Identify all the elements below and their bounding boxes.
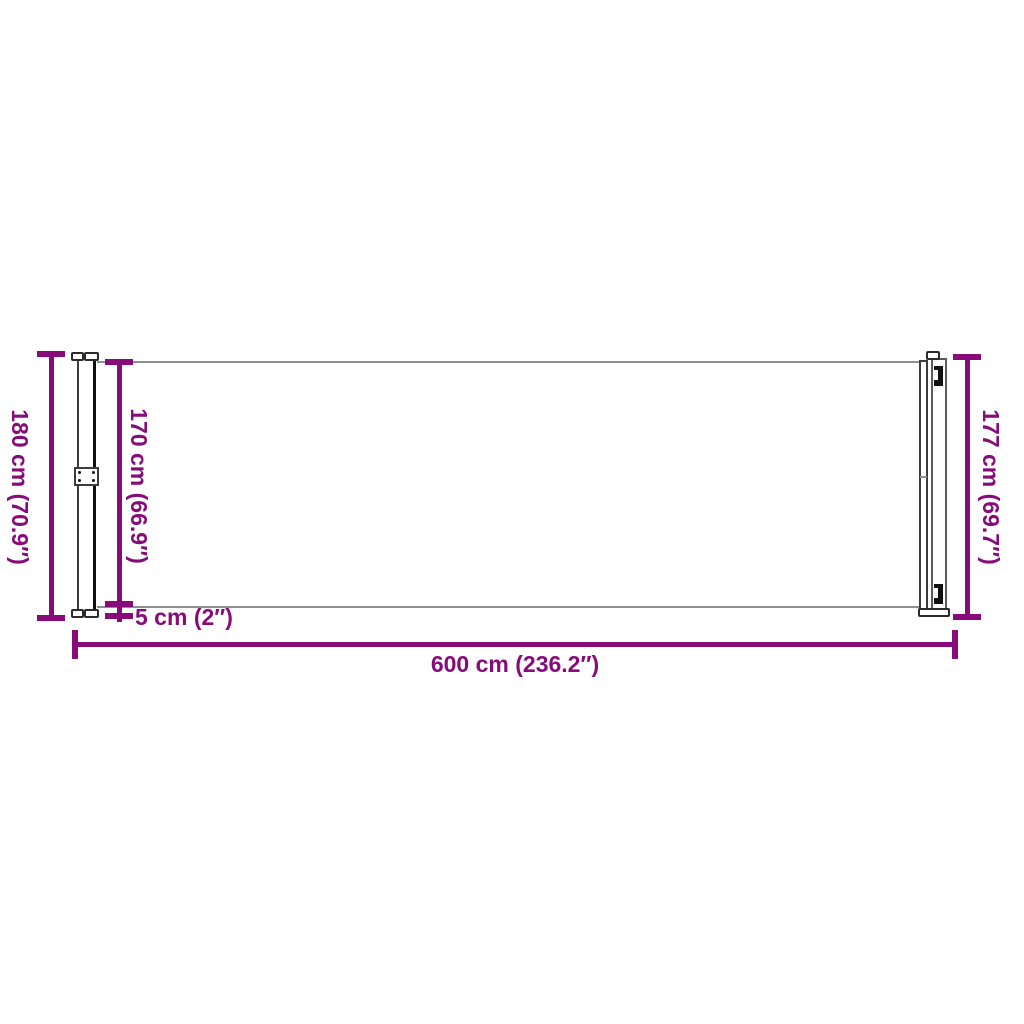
end-pole-bottom-bracket (934, 584, 943, 604)
dimension-line (49, 354, 54, 618)
screw-hole-icon (92, 471, 95, 474)
pole-height-label: 177 cm (69.7″) (979, 409, 1002, 565)
product-dimension-diagram: 180 cm (70.9″) 170 cm (66.9″) 5 cm (2″) … (0, 0, 1024, 1024)
total-height-label: 180 cm (70.9″) (8, 409, 31, 565)
dimension-line (965, 357, 970, 620)
cassette-post-body (77, 356, 96, 616)
end-pole-foot (918, 608, 950, 617)
dimension-tick (37, 351, 65, 357)
bracket-notch (934, 370, 938, 380)
bottom-gap-label: 5 cm (2″) (135, 606, 233, 629)
dimension-line (75, 642, 955, 647)
dimension-tick (105, 359, 133, 365)
dimension-tick (105, 601, 133, 607)
bracket-notch (934, 588, 938, 598)
end-pole-pull-bar (919, 360, 928, 612)
dimension-tick (105, 613, 133, 619)
awning-fabric-panel (97, 361, 923, 608)
dimension-tick (953, 614, 981, 620)
end-pole-top-bracket (934, 366, 943, 386)
total-length-label: 600 cm (236.2″) (75, 653, 955, 676)
dimension-line (117, 361, 122, 622)
cassette-top-cap-left (71, 352, 84, 361)
cassette-top-cap-right (84, 352, 99, 361)
dimension-tick (37, 615, 65, 621)
fabric-height-label: 170 cm (66.9″) (127, 408, 150, 564)
cassette-foot-right (84, 609, 99, 618)
cassette-foot-left (71, 609, 84, 618)
wall-mount-plate (74, 467, 99, 486)
screw-hole-icon (92, 479, 95, 482)
end-pole-top-cap (926, 351, 940, 360)
screw-hole-icon (78, 479, 81, 482)
end-pole-profile (931, 358, 947, 613)
pull-bar-joint-line (920, 476, 927, 478)
screw-hole-icon (78, 471, 81, 474)
dimension-tick (953, 354, 981, 360)
